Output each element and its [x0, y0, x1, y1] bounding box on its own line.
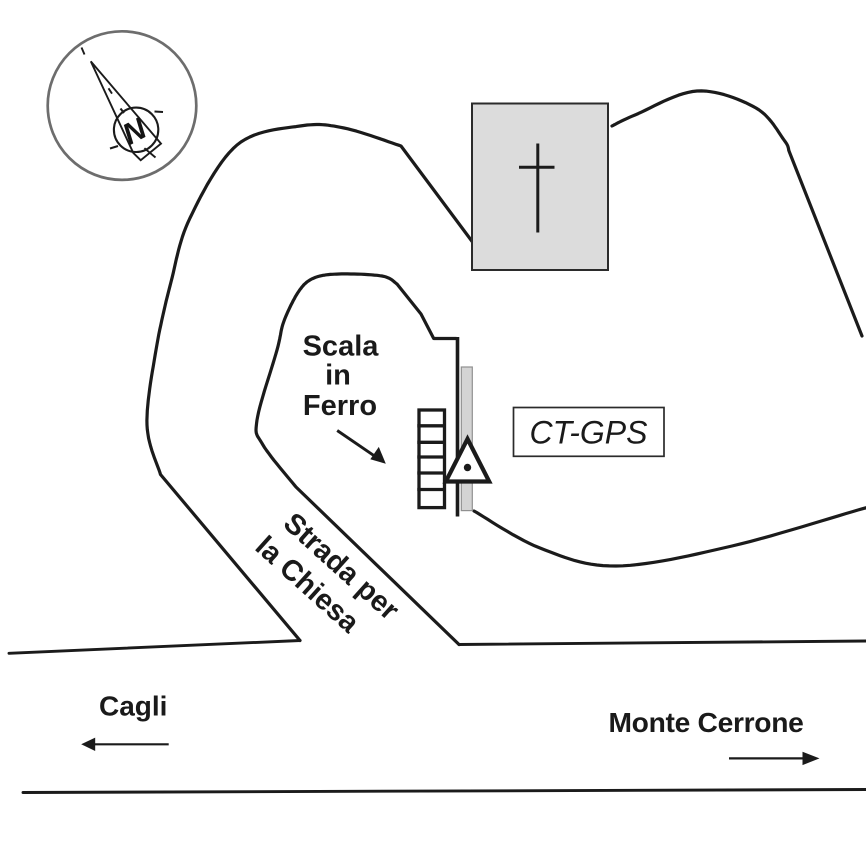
svg-text:Scala: Scala — [303, 331, 380, 363]
svg-text:Cagli: Cagli — [99, 691, 167, 722]
svg-text:Monte Cerrone: Monte Cerrone — [609, 706, 804, 738]
svg-text:Ferro: Ferro — [303, 390, 377, 422]
svg-text:CT-GPS: CT-GPS — [530, 415, 648, 451]
svg-text:in: in — [325, 360, 351, 392]
